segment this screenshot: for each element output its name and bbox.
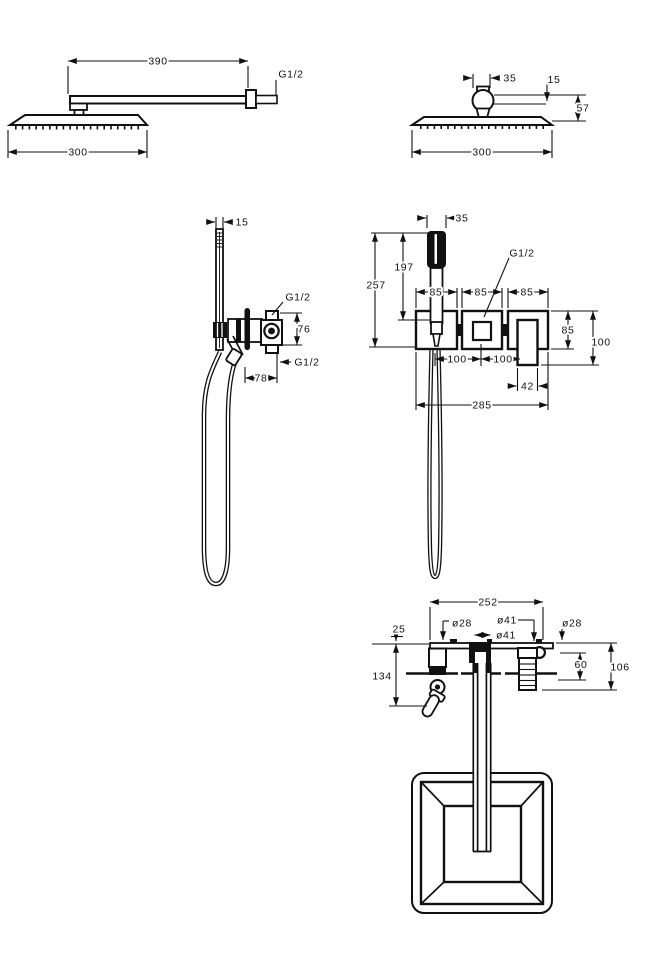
dim-arm-length: 390: [148, 56, 167, 68]
dim-handle-width: 42: [521, 381, 534, 393]
dim-mixer-handset-width: 35: [456, 213, 469, 225]
dim-dia-valve: ø41: [497, 615, 517, 627]
left-valve-with-lever: [419, 649, 446, 720]
dim-dia-right: ø28: [562, 618, 582, 630]
spec-sheet-page: 390 G1/2 300 35 15: [0, 0, 648, 970]
dim-handle-drop: 100: [591, 337, 610, 349]
dim-top-offset: 15: [548, 74, 561, 86]
ball-joint: [473, 87, 494, 119]
dim-spout-overall-width: 252: [478, 597, 497, 609]
dim-height-right: 106: [610, 662, 629, 674]
dim-rail-offset: 25: [393, 624, 406, 636]
wall-outlet-elbow: [261, 311, 282, 353]
view-spout: 252 ø28 ø41 ø41 ø28 25 134 60: [372, 597, 630, 914]
dim-head-width-front: 300: [472, 147, 491, 159]
dimensions-handshower: 15 G1/2 76 G1/2 78: [208, 217, 320, 385]
shower-head-side: [10, 115, 147, 128]
dim-spacing-right: 100: [493, 354, 512, 366]
dim-drop-height: 57: [577, 103, 590, 115]
dim-outlet-height: 76: [298, 324, 311, 336]
dimensions-overhead-front: 35 15 57 300: [412, 73, 589, 159]
dim-dia-spout: ø41: [496, 630, 516, 642]
mixer-hose: [430, 349, 441, 577]
dim-overall-width: 285: [472, 400, 491, 412]
dim-outlet-offset: 78: [255, 373, 268, 385]
dim-height-left: 134: [372, 671, 391, 683]
spout-tube: [473, 663, 492, 852]
dim-mixer-thread: G1/2: [509, 248, 534, 260]
dim-overall-height: 257: [366, 280, 385, 292]
dim-block-height: 85: [562, 325, 575, 337]
dim-handle-block-width: 85: [521, 287, 534, 299]
dimensions-spout: 252 ø28 ø41 ø41 ø28 25 134 60: [372, 597, 630, 707]
dim-handset-length: 197: [394, 262, 413, 274]
dim-spacing-left: 100: [447, 354, 466, 366]
dim-arm-thread: G1/2: [278, 69, 303, 81]
dimensions-overhead-side: 390 G1/2 300: [8, 56, 304, 159]
view-handshower-side: 15 G1/2 76 G1/2 78: [204, 217, 320, 585]
shower-arm: [70, 90, 277, 116]
dim-holder-width: 85: [430, 287, 443, 299]
mixer-handle: [518, 320, 538, 365]
dim-ball-width: 35: [504, 73, 517, 85]
technical-drawing-canvas: 390 G1/2 300 35 15: [0, 0, 648, 970]
view-mixer-front: 35 257 197 G1/2 85 85 85 85: [366, 213, 610, 578]
handshower-hose: [204, 352, 237, 584]
right-valve: [518, 647, 545, 690]
dim-valve-width: 85: [475, 287, 488, 299]
dim-head-width-side: 300: [68, 147, 87, 159]
shower-head-front: [412, 117, 552, 127]
dim-handset-width: 15: [236, 217, 249, 229]
dim-thread-top: G1/2: [285, 292, 310, 304]
dim-dia-left: ø28: [452, 618, 472, 630]
dim-depth: 60: [575, 659, 588, 671]
view-overhead-shower-front: 35 15 57 300: [412, 73, 589, 159]
view-overhead-shower-side: 390 G1/2 300: [8, 56, 304, 159]
dim-thread-bottom: G1/2: [294, 357, 319, 369]
